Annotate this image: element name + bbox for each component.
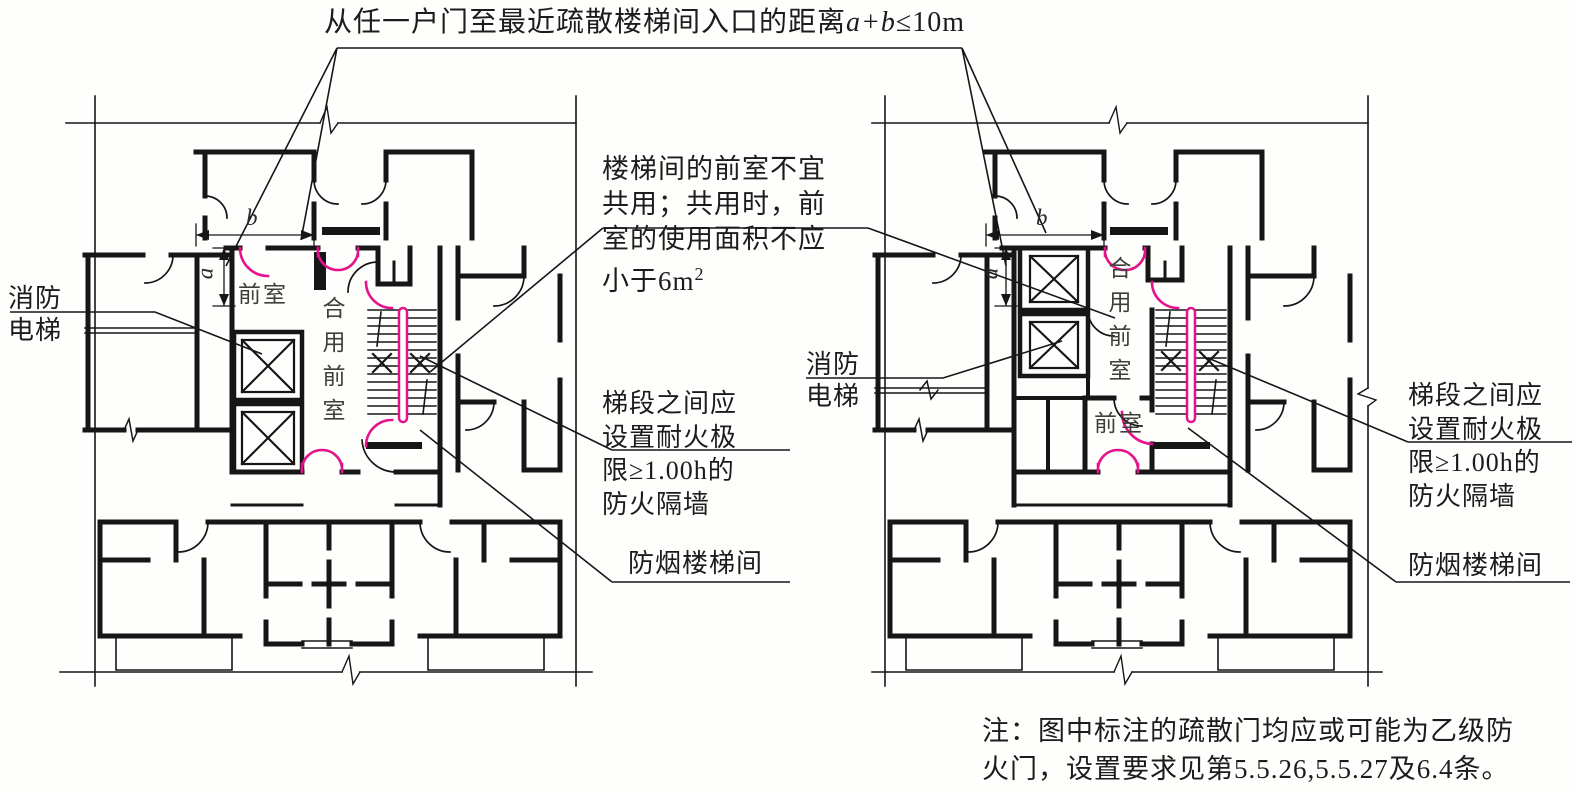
dim-b-right: b [1036,206,1048,229]
dim-a-right: a [978,268,1001,280]
dim-b-left: b [246,206,258,229]
smokeproof-staircase-label-right: 防烟楼梯间 [1408,549,1543,582]
left-plan-side-left [85,255,232,441]
entry-sill [1110,227,1168,235]
footnote: 注：图中标注的疏散门均应或可能为乙级防 火门，设置要求见第5.5.26,5.5.… [982,712,1514,788]
title-text: 从任一户门至最近疏散楼梯间入口的距离 [324,7,846,38]
left-plan-elevator-shafts [234,332,302,472]
footnote-line2: 火门，设置要求见第5.5.26,5.5.27及6.4条。 [982,750,1514,788]
footnote-line1: 注：图中标注的疏散门均应或可能为乙级防 [982,712,1514,750]
diagram-page: 从任一户门至最近疏散楼梯间入口的距离a+b≤10m 楼梯间的前室不宜 共用；共用… [0,0,1576,793]
title-formula: a+b [846,7,896,38]
partition-note-right: 梯段之间应 设置耐火极 限≥1.00h的 防火隔墙 [1408,379,1543,513]
left-plan-fire-partition-rail [399,308,407,422]
partition-note-left: 梯段之间应 设置耐火极 限≥1.00h的 防火隔墙 [602,387,737,521]
right-plan-walls-top [986,152,1262,238]
shared-lobby-note-line1: 楼梯间的前室不宜 [602,152,826,187]
shared-lobby-note-line4: 小于6m2 [602,257,826,299]
shared-lobby-note-line4-text: 小于6m [602,266,695,296]
shared-lobby-note-line3: 室的使用面积不应 [602,222,826,257]
smokeproof-staircase-label-left: 防烟楼梯间 [628,547,763,580]
left-plan-door-arcs-core [348,262,396,472]
partition-note-left-line2: 设置耐火极 [602,421,737,455]
shared-lobby-note-line4-sup: 2 [695,264,705,284]
partition-note-left-line4: 防火隔墙 [602,488,737,522]
left-plan-door-arcs-top [205,180,386,218]
partition-note-right-line4: 防火隔墙 [1408,480,1543,514]
front-room-label-right: 前室 [1094,412,1144,435]
leader-lines [10,48,1572,582]
fire-elevator-right-line2: 电梯 [806,381,860,413]
right-plan-door-arcs-top [995,180,1176,218]
partition-note-right-line2: 设置耐火极 [1408,413,1543,447]
fire-elevator-label-left: 消防 电梯 [8,283,62,347]
shared-lobby-note: 楼梯间的前室不宜 共用；共用时，前 室的使用面积不应 小于6m2 [602,152,826,299]
left-plan-walls-top [196,152,472,238]
right-plan-elevator-shafts [1020,248,1088,376]
fire-elevator-left-line1: 消防 [8,283,62,315]
left-plan-bottom-band [100,522,560,670]
fire-elevator-label-right: 消防 电梯 [806,349,860,413]
partition-note-right-line1: 梯段之间应 [1408,379,1543,413]
shared-lobby-note-line2: 共用；共用时，前 [602,187,826,222]
front-room-label-left: 前室 [238,283,288,306]
floor-plan-drawing [0,0,1576,793]
partition-note-right-line3: 限≥1.00h的 [1408,446,1543,480]
title-leader-right-fan [962,48,1046,266]
shared-front-room-label-right: 合用前室 [1106,256,1129,412]
diagram-title: 从任一户门至最近疏散楼梯间入口的距离a+b≤10m [324,9,965,37]
fire-elevator-right-line1: 消防 [806,349,860,381]
right-plan-bottom-band [890,522,1350,670]
partition-note-left-line1: 梯段之间应 [602,387,737,421]
dim-a-left: a [193,268,216,280]
right-plan-side-right [1248,248,1350,470]
partition-note-left-line3: 限≥1.00h的 [602,454,737,488]
left-plan-side-right [458,248,560,470]
fire-elevator-left-line2: 电梯 [8,315,62,347]
entry-sill [322,227,380,235]
title-limit: ≤10m [896,7,965,38]
shared-front-room-label-left: 合用前室 [320,296,343,452]
right-plan-fire-partition-rail [1187,308,1195,422]
right-plan-side-left [875,255,1014,441]
title-leader-left-fan [226,48,337,266]
